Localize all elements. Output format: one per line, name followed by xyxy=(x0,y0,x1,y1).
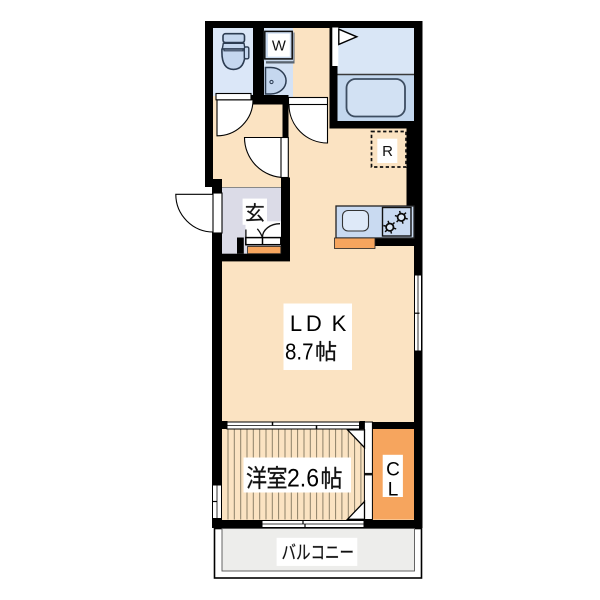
svg-text:L: L xyxy=(290,311,302,336)
svg-text:C: C xyxy=(386,460,400,481)
svg-text:8.7: 8.7 xyxy=(285,339,314,365)
svg-text:W: W xyxy=(272,38,286,54)
svg-text:L: L xyxy=(388,480,399,501)
svg-text:R: R xyxy=(382,143,393,160)
svg-text:K: K xyxy=(332,311,347,336)
svg-text:2.6: 2.6 xyxy=(287,465,319,493)
svg-text:D: D xyxy=(306,311,322,336)
